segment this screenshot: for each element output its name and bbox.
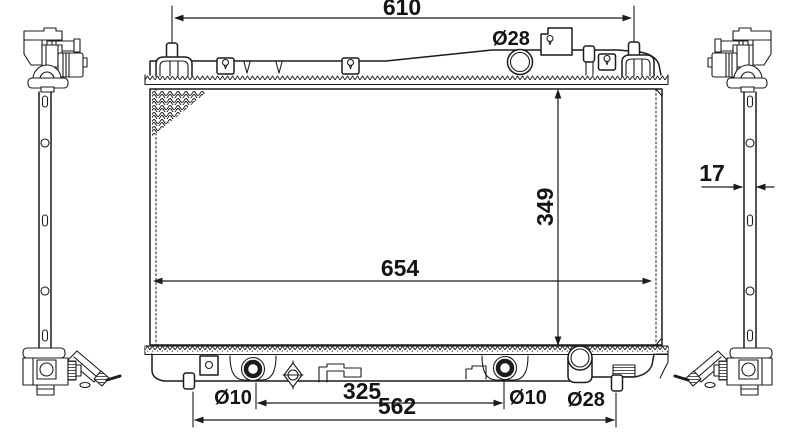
dim-core-height: 349 xyxy=(532,89,561,346)
filler-neck xyxy=(508,50,533,75)
dim-label-filler-neck: Ø28 xyxy=(492,28,530,50)
radiator-drawing: 610 Ø28 349 654 17 325 562 Ø10 Ø10 Ø28 xyxy=(0,0,800,443)
dim-label-349: 349 xyxy=(532,188,558,226)
bottom-clip-box xyxy=(200,356,218,375)
outlet-pipe xyxy=(568,346,592,383)
bottom-tank xyxy=(152,346,668,391)
dim-label-654: 654 xyxy=(381,255,420,281)
dim-label-610: 610 xyxy=(383,0,421,20)
top-clip-1 xyxy=(217,58,234,74)
core-fin-hatch xyxy=(152,91,208,137)
cap-bracket xyxy=(541,28,572,55)
dim-core-width: 654 xyxy=(153,255,652,284)
right-side-view xyxy=(675,28,772,395)
top-tab-2 xyxy=(276,62,282,73)
dim-top-mounting-width: 610 xyxy=(174,0,632,21)
left-grommet xyxy=(242,358,265,381)
right-grommet xyxy=(494,357,517,380)
technical-drawing-canvas: 610 Ø28 349 654 17 325 562 Ø10 Ø10 Ø28 xyxy=(0,0,800,443)
right-mount-pin xyxy=(612,375,623,391)
radiator-core xyxy=(150,89,662,345)
top-clip-3 xyxy=(599,54,616,70)
dim-label-right-grommet: Ø10 xyxy=(509,387,547,409)
top-tab-1 xyxy=(244,62,250,73)
left-side-view xyxy=(23,28,120,395)
dim-core-thickness: 17 xyxy=(699,160,774,190)
top-clip-2 xyxy=(342,58,359,74)
top-serrated-strip xyxy=(145,75,668,85)
dim-label-325: 325 xyxy=(343,378,382,404)
left-top-mount-bracket xyxy=(156,6,192,76)
overflow-nipple xyxy=(584,46,595,75)
left-mount-pin xyxy=(184,373,195,389)
drain-plug xyxy=(283,361,303,389)
dim-label-outlet: Ø28 xyxy=(567,389,605,411)
front-view xyxy=(145,6,668,391)
dim-label-17: 17 xyxy=(699,160,725,186)
dim-label-left-grommet: Ø10 xyxy=(214,387,252,409)
dim-label-562: 562 xyxy=(378,393,416,419)
